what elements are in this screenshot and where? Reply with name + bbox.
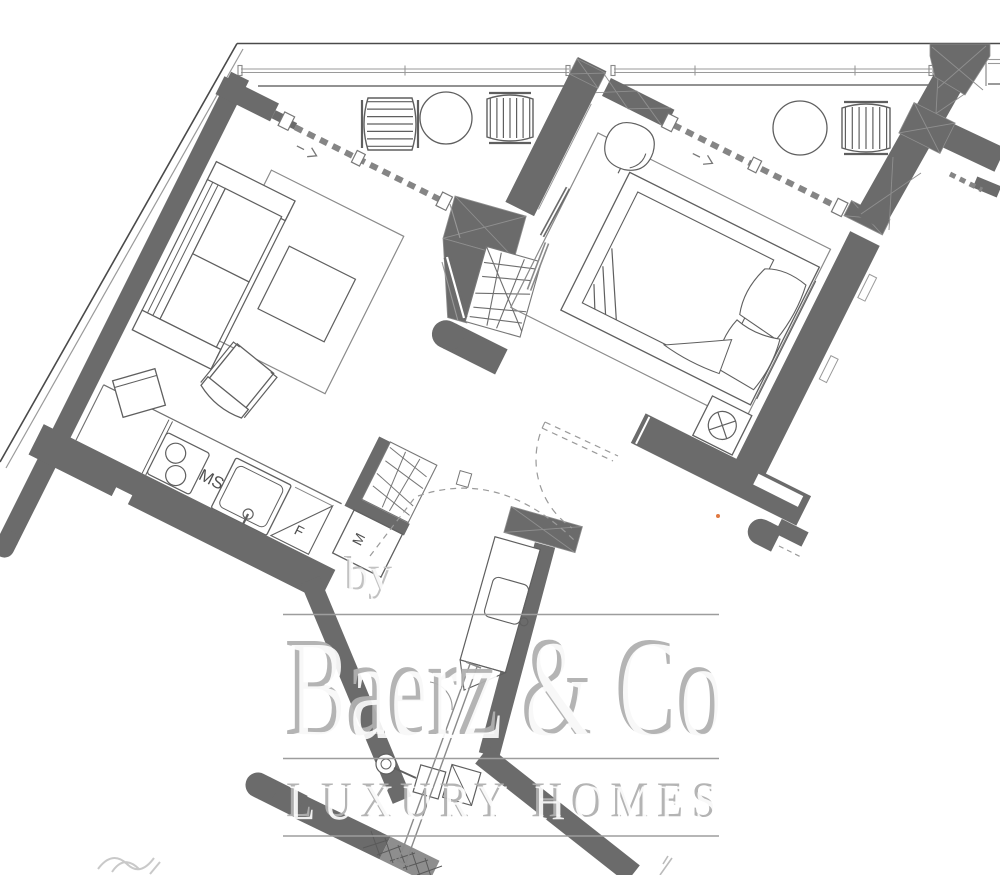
svg-text:by: by bbox=[346, 549, 394, 602]
svg-text:LUXURY HOMES: LUXURY HOMES bbox=[289, 774, 727, 830]
svg-text:Baerz & Co: Baerz & Co bbox=[289, 611, 726, 769]
